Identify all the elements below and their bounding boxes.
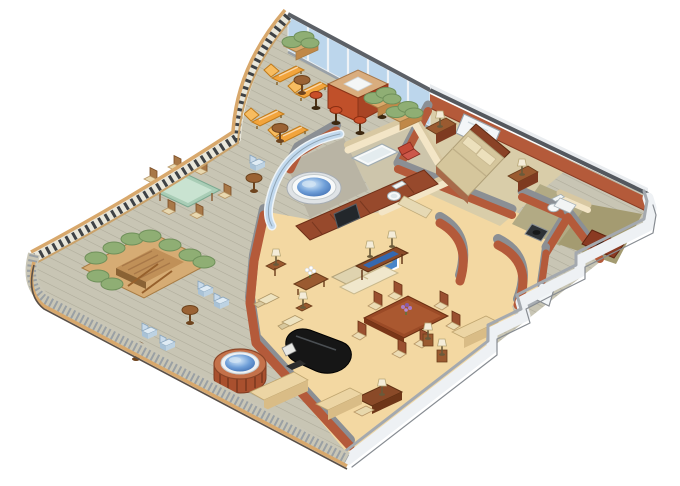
nightstand-right <box>508 159 538 192</box>
pedestal-lamp <box>423 323 433 346</box>
floor-living-dining-hall <box>252 178 548 453</box>
interior-bench <box>452 316 498 348</box>
deck-dining-chair <box>162 200 175 215</box>
hedge <box>193 256 215 268</box>
deck-dining-chair <box>168 156 181 171</box>
toilet <box>548 194 565 212</box>
hedge <box>159 239 181 251</box>
outer-hull-wall <box>343 191 656 467</box>
tv-cabinet-wall <box>296 170 438 276</box>
entry <box>535 282 554 306</box>
bar-stool <box>354 117 366 136</box>
hedge <box>103 242 125 254</box>
headboard <box>470 124 510 158</box>
drink-table <box>246 174 262 194</box>
closet-bench <box>582 230 624 258</box>
red-armchair <box>398 142 420 160</box>
deck-chair <box>250 155 265 171</box>
entry-door <box>535 282 554 306</box>
armchair <box>254 294 279 308</box>
master-bathroom <box>352 144 406 201</box>
hedge <box>101 278 123 290</box>
hedge <box>87 270 109 282</box>
sun-lounger <box>264 64 304 85</box>
drink-table <box>294 76 310 96</box>
living-room <box>254 231 408 373</box>
vanity <box>554 198 576 213</box>
bathtub <box>352 144 398 166</box>
hedge <box>179 249 201 261</box>
window-posts <box>308 27 408 114</box>
drink-table <box>128 342 144 362</box>
sun-lounger <box>288 80 328 101</box>
deck-dining-chair <box>194 160 207 175</box>
drink-table <box>272 124 288 144</box>
deck-chair <box>198 281 213 297</box>
closet-shelf <box>595 240 612 252</box>
deck-dining-chair <box>190 204 203 219</box>
hedge <box>121 233 143 245</box>
writing-desk <box>354 379 402 416</box>
dining-chair <box>446 311 460 330</box>
purple-flowers <box>401 303 412 315</box>
bed-skirt <box>436 166 468 204</box>
hot-tub-ribs <box>220 370 262 392</box>
floor-closet <box>558 204 642 264</box>
deck-bench <box>316 388 362 420</box>
floor-spa <box>286 138 368 218</box>
bedroom <box>398 111 538 218</box>
deck-railing-bottom <box>32 254 347 469</box>
grand-piano <box>282 329 351 373</box>
mirror-panel <box>456 114 500 150</box>
floor-plan-svg <box>0 0 680 486</box>
toilet <box>388 181 407 201</box>
coffee-table <box>294 266 328 295</box>
interior-floors <box>252 108 642 453</box>
deck-bench <box>250 372 308 411</box>
shower-dark <box>525 224 548 241</box>
guest-bathroom <box>525 194 576 241</box>
dining-chair <box>392 339 406 358</box>
dining-area <box>352 281 460 416</box>
pedestal-lamp <box>437 339 447 362</box>
entry-hall-curved-walls <box>440 217 546 305</box>
hedge-planter <box>386 102 423 131</box>
wall-tv <box>380 253 398 276</box>
lamp-table-between-chairs <box>296 292 312 311</box>
console-lamp <box>366 241 375 258</box>
hedge-planter <box>364 88 401 117</box>
deck-chair <box>214 293 229 309</box>
deck-dining-chair <box>144 168 157 183</box>
white-flowers <box>305 266 316 278</box>
dining-chair <box>434 291 448 310</box>
side-table-lamp <box>266 249 286 276</box>
deck-chair <box>160 335 175 351</box>
bar-stool <box>330 107 342 126</box>
dining-chair <box>414 329 428 348</box>
hedge <box>139 230 161 242</box>
bathroom-partition-walls <box>348 117 588 212</box>
floor-plan-illustration <box>0 0 680 486</box>
bedroom-walls <box>398 105 512 215</box>
piano-keyboard <box>282 343 296 356</box>
floor-master-bath <box>348 122 450 212</box>
mattress <box>436 130 504 196</box>
bar-counter <box>328 70 388 122</box>
spa-glass-enclosure <box>268 134 340 226</box>
pillow <box>476 148 496 166</box>
bar-stool <box>310 92 322 111</box>
floor-entry-recess <box>516 286 552 310</box>
sun-lounger <box>268 124 308 145</box>
floor-bedroom <box>362 108 566 226</box>
hedge-planter <box>282 32 319 61</box>
dining-chair <box>352 321 366 340</box>
deck-chair <box>142 323 157 339</box>
foot-bench <box>398 196 432 218</box>
top-outer-wall <box>430 84 648 212</box>
drink-table <box>182 306 198 326</box>
interior-walls <box>250 105 600 446</box>
dining-chair <box>388 281 402 300</box>
deck-furniture <box>82 32 423 421</box>
double-bed <box>436 124 510 204</box>
deck-dining-chair <box>218 184 231 199</box>
sunken-stair-garden <box>82 230 215 298</box>
indoor-whirlpool <box>287 172 341 204</box>
deck-railing-left <box>31 10 290 263</box>
dining-chair <box>368 291 382 310</box>
sofa <box>332 255 398 294</box>
walk-in-closet <box>582 230 624 258</box>
stairs <box>122 251 170 278</box>
console-lamp <box>388 231 397 248</box>
cabinet-tv-dark <box>334 204 360 228</box>
stair-handrails <box>128 264 172 293</box>
hedge <box>85 252 107 264</box>
deck-floor <box>32 16 652 462</box>
sun-lounger <box>244 108 284 129</box>
guest-bath-walls <box>522 191 600 259</box>
console-table <box>356 231 408 280</box>
dining-table <box>364 296 448 343</box>
desk-chair <box>354 406 374 416</box>
deck-dividing-wall <box>250 125 350 446</box>
armchair <box>278 316 303 330</box>
window-wall <box>288 14 430 128</box>
cabinet-panels <box>312 181 414 234</box>
deck-dining-set <box>144 156 231 219</box>
piano-bench <box>286 360 306 370</box>
outdoor-hot-tub <box>214 349 266 393</box>
pillow <box>462 136 482 154</box>
nightstand-left <box>426 111 456 144</box>
bar-stool <box>376 101 388 120</box>
floor-guest-bath <box>512 184 590 246</box>
